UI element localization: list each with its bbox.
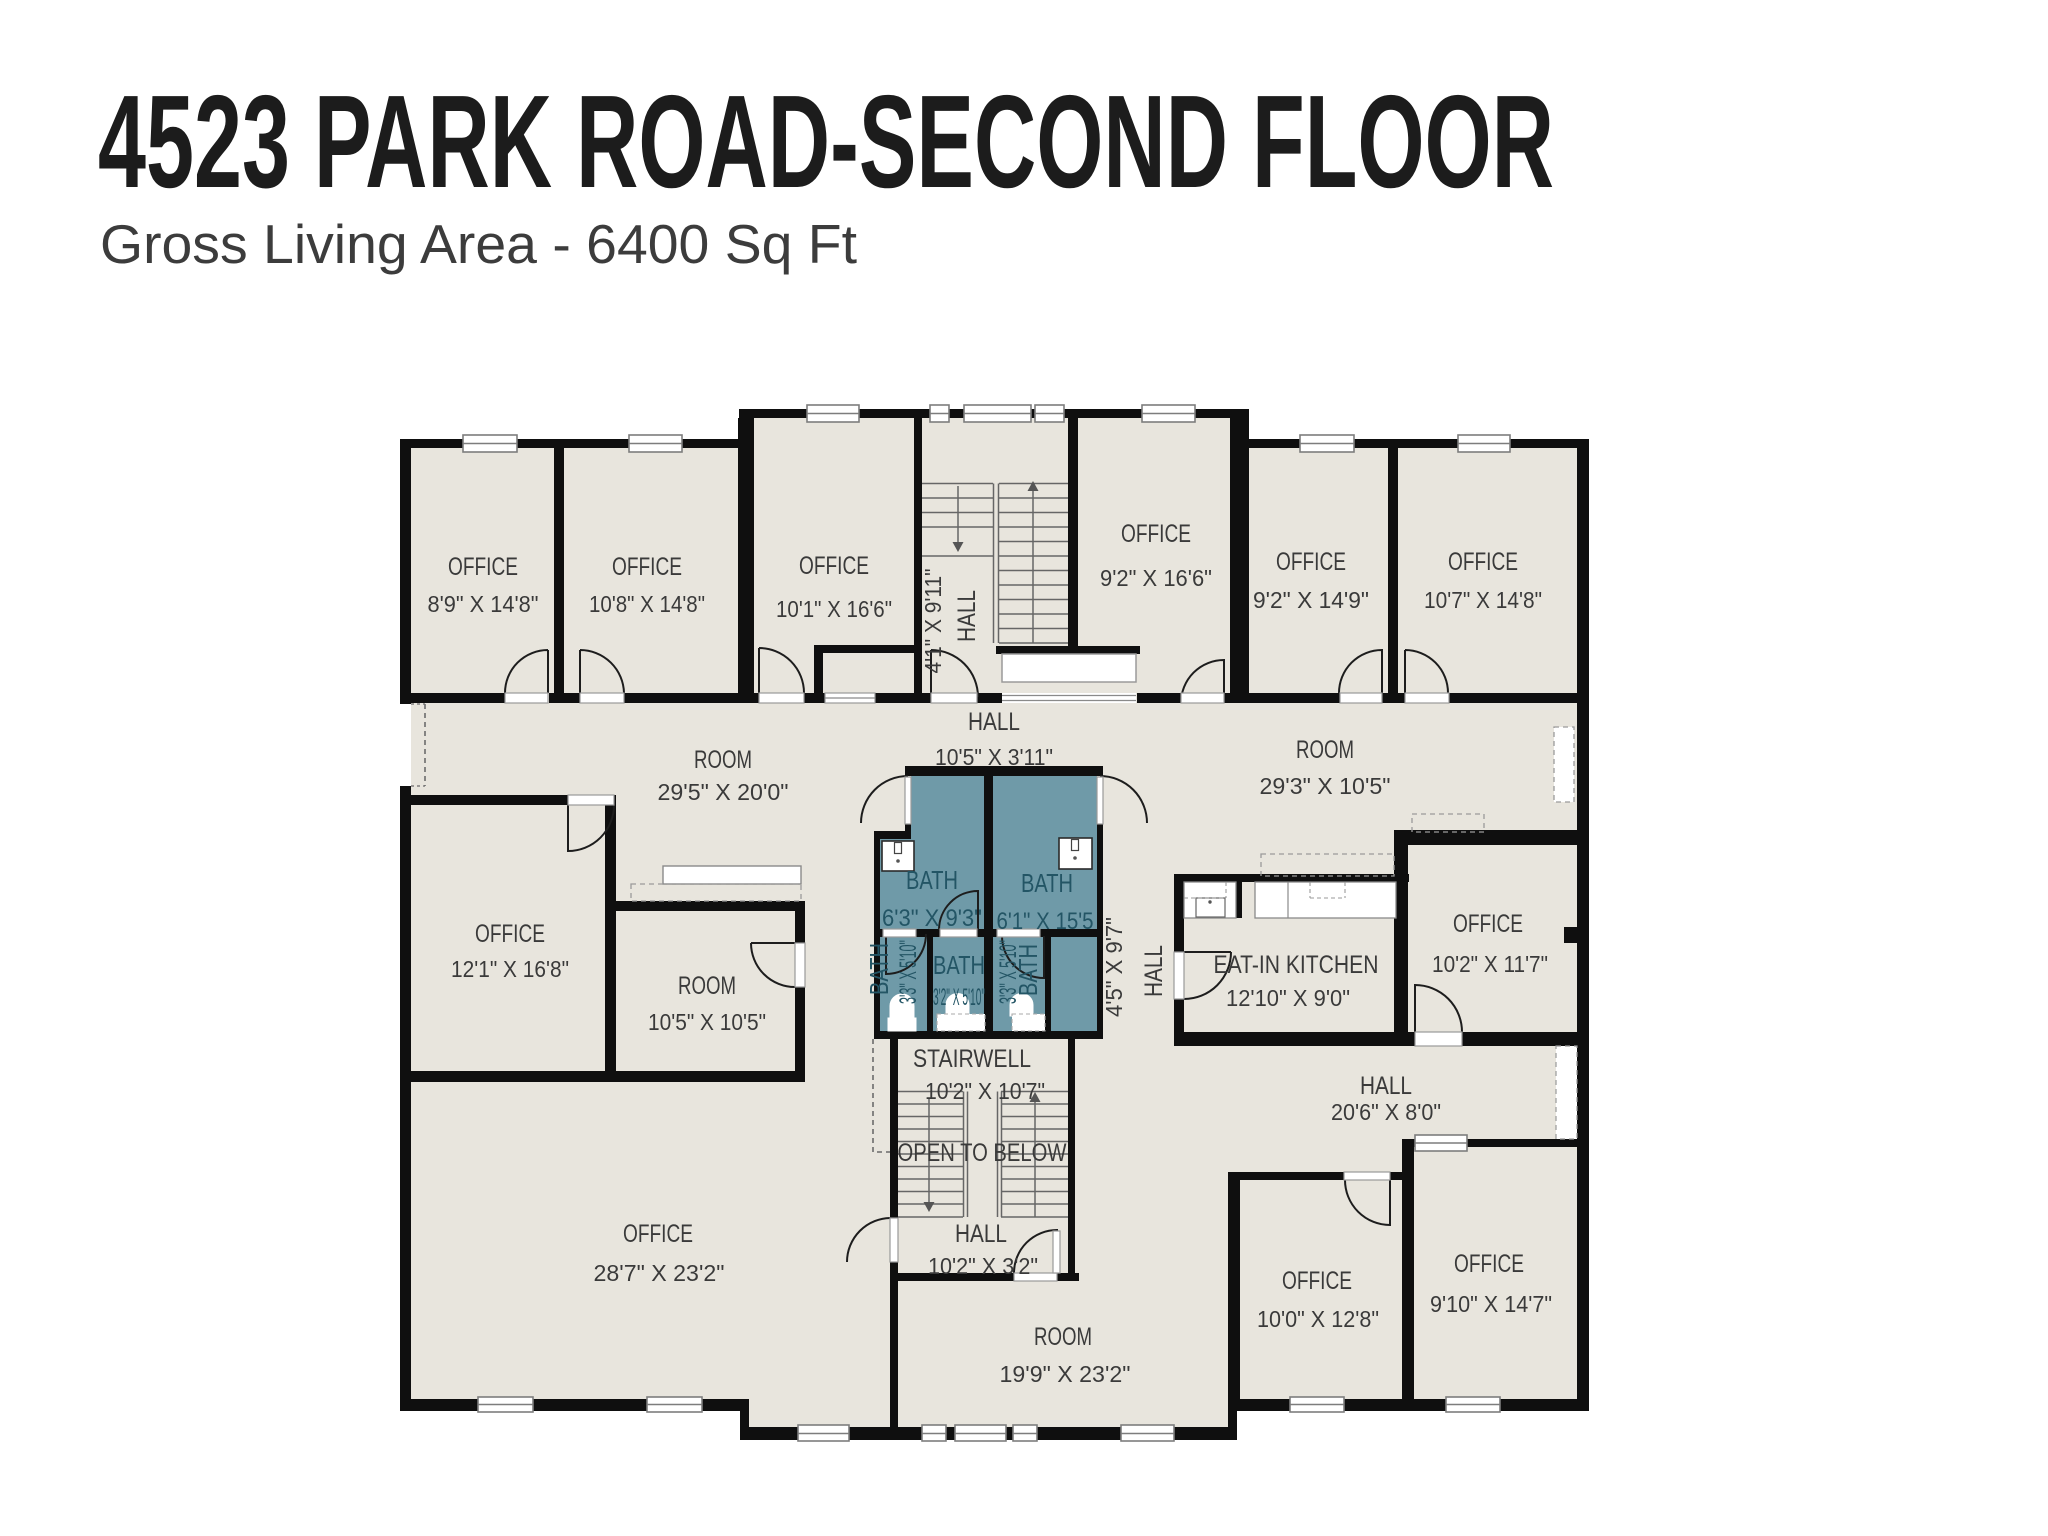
svg-text:HALL: HALL (955, 1220, 1007, 1248)
svg-text:9'2" X 14'9": 9'2" X 14'9" (1253, 587, 1369, 613)
svg-text:OFFICE: OFFICE (1448, 548, 1518, 576)
svg-text:OFFICE: OFFICE (612, 553, 682, 581)
svg-text:6'3" X 9'3": 6'3" X 9'3" (882, 905, 982, 932)
svg-text:10'2" X 10'7": 10'2" X 10'7" (925, 1078, 1045, 1104)
svg-text:29'5" X 20'0": 29'5" X 20'0" (658, 779, 789, 805)
svg-text:OFFICE: OFFICE (1282, 1267, 1352, 1295)
svg-text:20'6" X 8'0": 20'6" X 8'0" (1331, 1099, 1441, 1125)
svg-text:4'1" X 9'11": 4'1" X 9'11" (920, 569, 946, 674)
svg-text:10'2" X 11'7": 10'2" X 11'7" (1432, 951, 1548, 977)
svg-text:BATH: BATH (933, 950, 985, 980)
svg-text:10'1" X 16'6": 10'1" X 16'6" (776, 596, 892, 622)
svg-text:3'2" X 5'10": 3'2" X 5'10" (933, 984, 985, 1011)
svg-text:9'10" X 14'7": 9'10" X 14'7" (1430, 1291, 1552, 1317)
svg-text:29'3" X 10'5": 29'3" X 10'5" (1260, 773, 1391, 799)
svg-text:4523 PARK ROAD-SECOND FLOOR: 4523 PARK ROAD-SECOND FLOOR (98, 68, 1554, 215)
svg-text:BATH: BATH (1021, 868, 1073, 898)
svg-text:4'5" X 9'7": 4'5" X 9'7" (1101, 917, 1127, 1017)
svg-text:ROOM: ROOM (1034, 1323, 1092, 1351)
svg-text:STAIRWELL: STAIRWELL (913, 1045, 1031, 1073)
svg-text:10'2" X 3'2": 10'2" X 3'2" (928, 1253, 1038, 1279)
svg-text:OFFICE: OFFICE (799, 552, 869, 580)
svg-text:OFFICE: OFFICE (1454, 1250, 1524, 1278)
svg-text:HALL: HALL (1360, 1072, 1412, 1100)
svg-text:BATH: BATH (906, 865, 958, 895)
svg-text:OPEN TO BELOW: OPEN TO BELOW (898, 1139, 1067, 1167)
svg-text:12'1" X 16'8": 12'1" X 16'8" (451, 956, 569, 982)
svg-text:OFFICE: OFFICE (1453, 910, 1523, 938)
svg-text:HALL: HALL (1140, 945, 1168, 997)
svg-text:19'9" X 23'2": 19'9" X 23'2" (1000, 1361, 1131, 1387)
svg-text:Gross Living Area - 6400 Sq Ft: Gross Living Area - 6400 Sq Ft (100, 213, 857, 275)
svg-text:10'0" X 12'8": 10'0" X 12'8" (1257, 1306, 1379, 1332)
svg-text:10'5" X 3'11": 10'5" X 3'11" (935, 744, 1053, 770)
svg-text:10'7" X 14'8": 10'7" X 14'8" (1424, 587, 1542, 613)
svg-text:OFFICE: OFFICE (475, 920, 545, 948)
svg-text:OFFICE: OFFICE (1121, 520, 1191, 548)
svg-text:10'8" X 14'8": 10'8" X 14'8" (589, 591, 705, 617)
svg-text:EAT-IN KITCHEN: EAT-IN KITCHEN (1214, 951, 1379, 979)
svg-text:HALL: HALL (968, 708, 1020, 736)
svg-text:8'9" X 14'8": 8'9" X 14'8" (428, 591, 539, 617)
svg-text:3'3" X 5'10": 3'3" X 5'10" (895, 940, 922, 1004)
svg-text:OFFICE: OFFICE (448, 553, 518, 581)
svg-text:6'1" X 15'5: 6'1" X 15'5 (997, 908, 1094, 935)
svg-text:BATH: BATH (864, 943, 894, 995)
svg-text:ROOM: ROOM (678, 972, 736, 1000)
svg-text:OFFICE: OFFICE (623, 1220, 693, 1248)
svg-text:ROOM: ROOM (1296, 736, 1354, 764)
svg-text:HALL: HALL (953, 590, 981, 642)
svg-text:OFFICE: OFFICE (1276, 548, 1346, 576)
svg-text:12'10" X 9'0": 12'10" X 9'0" (1226, 985, 1350, 1011)
svg-text:28'7" X 23'2": 28'7" X 23'2" (594, 1260, 725, 1286)
svg-text:10'5" X 10'5": 10'5" X 10'5" (648, 1009, 766, 1035)
svg-text:3'3" X 5'10": 3'3" X 5'10" (995, 940, 1022, 1004)
svg-text:9'2" X 16'6": 9'2" X 16'6" (1100, 565, 1212, 591)
svg-text:ROOM: ROOM (694, 746, 752, 774)
